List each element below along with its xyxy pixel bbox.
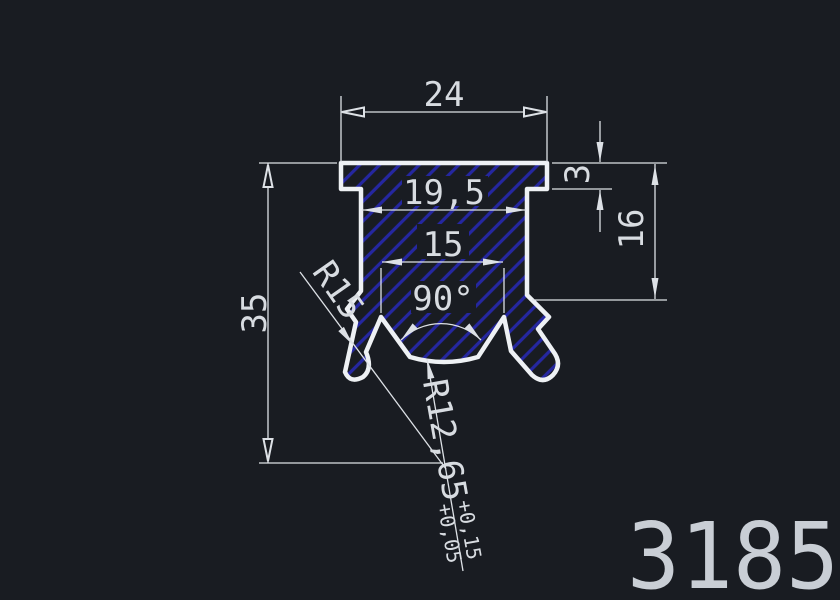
part-number: 3185 [627, 503, 839, 600]
dim-groove-angle-label: 90° [412, 279, 473, 319]
dim-flange-thickness-label: 3 [558, 164, 598, 184]
dim-flange-width-label: 24 [424, 75, 465, 115]
technical-drawing: 24 19,5 15 90° 35 3 16 R15 R12,65 +0,15 … [0, 0, 840, 600]
dim-side-height-label: 16 [612, 209, 652, 250]
dim-overall-height-label: 35 [235, 293, 275, 334]
cad-canvas: 24 19,5 15 90° 35 3 16 R15 R12,65 +0,15 … [0, 0, 840, 600]
dim-groove-width-label: 15 [423, 225, 464, 265]
dim-body-width-label: 19,5 [403, 173, 485, 213]
